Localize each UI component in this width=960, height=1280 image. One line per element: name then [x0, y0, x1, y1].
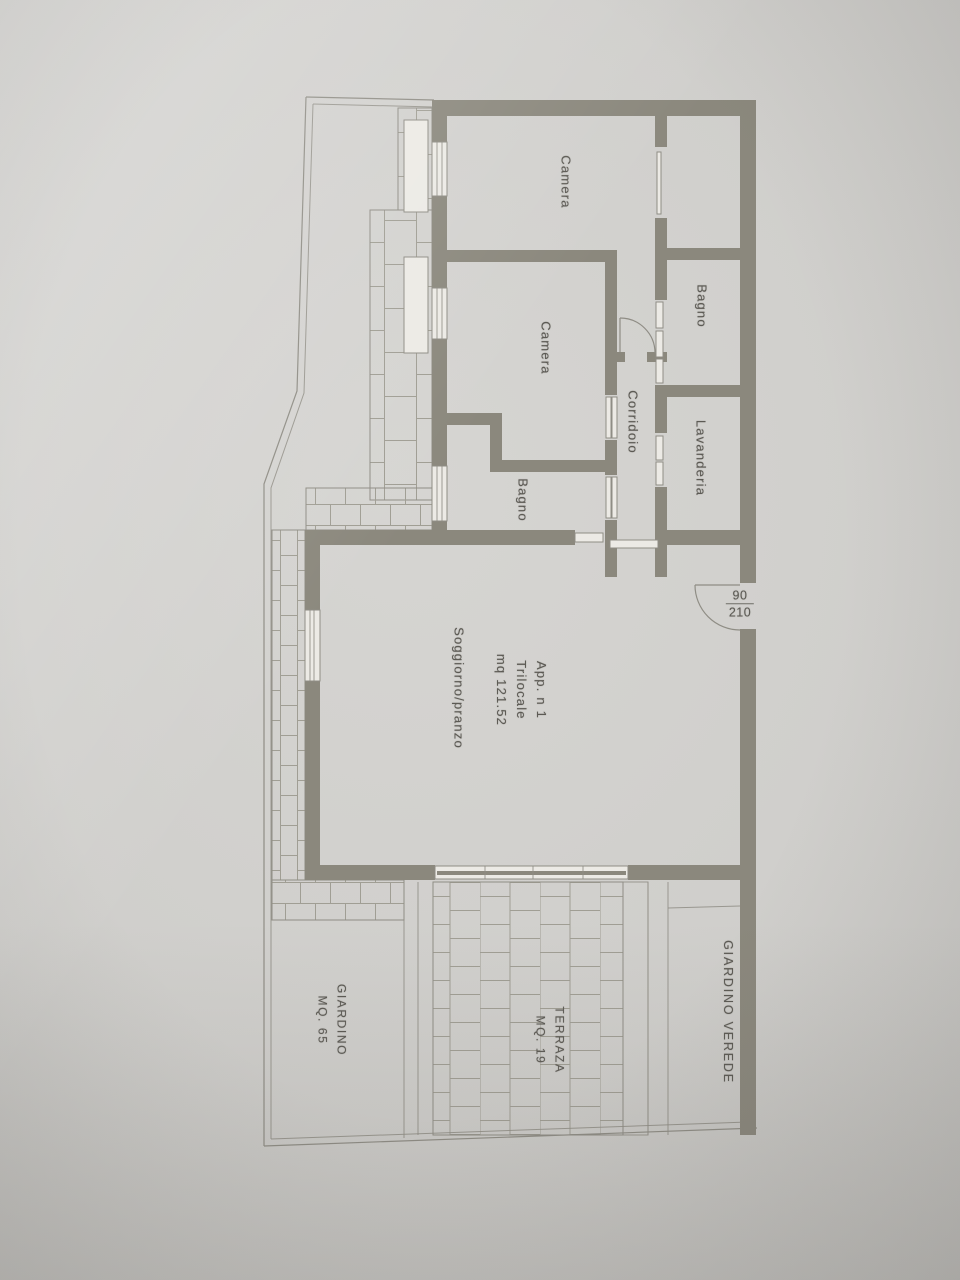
terrazza-label-line2: MQ. 19 [531, 1006, 550, 1073]
floorplan-photo: Camera Bagno Camera Corridoio Lavanderia… [0, 0, 960, 1280]
terrazza-label-line1: TERRAZA [550, 1006, 569, 1073]
room-label-corridoio: Corridoio [626, 390, 641, 454]
room-label-camera-mid: Camera [539, 321, 554, 374]
room-label-lavanderia: Lavanderia [694, 420, 709, 496]
apartment-info-line1: App. n 1 [531, 654, 551, 726]
entry-door-height: 210 [726, 604, 754, 621]
apartment-info-label: App. n 1 Trilocale mq 121.52 [491, 654, 551, 726]
terrazza-label: TERRAZA MQ. 19 [531, 1006, 568, 1073]
room-label-soggiorno: Soggiorno/pranzo [452, 627, 467, 749]
floorplan-linework [0, 0, 960, 1280]
giardino-label-line2: MQ. 65 [313, 984, 332, 1056]
entry-door-width: 90 [726, 587, 754, 603]
room-label-camera-top: Camera [559, 155, 574, 208]
apartment-info-line2: Trilocale [511, 654, 531, 726]
apartment-info-line3: mq 121.52 [491, 654, 511, 726]
room-label-bagno-top: Bagno [695, 284, 710, 328]
giardino-label: GIARDINO MQ. 65 [313, 984, 350, 1056]
giardino-label-line1: GIARDINO [332, 984, 351, 1056]
room-label-bagno-mid: Bagno [516, 478, 531, 522]
entry-door-dimension: 90 210 [726, 587, 754, 621]
giardino-verede-label: GIARDINO VEREDE [721, 940, 735, 1084]
